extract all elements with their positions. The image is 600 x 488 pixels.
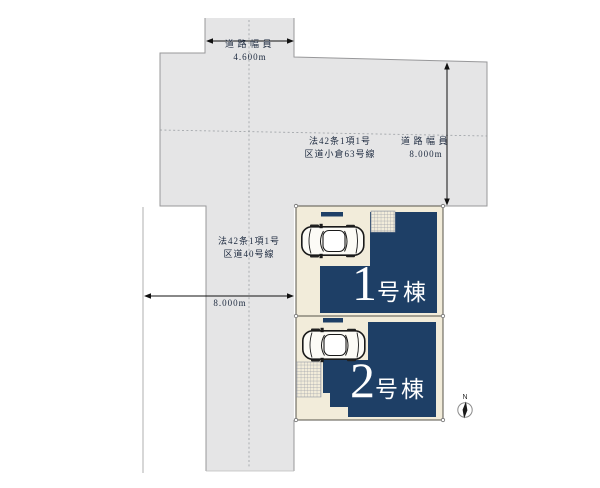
label-main-road-name: 法42条1項1号 区道小倉63号線 <box>304 135 375 161</box>
site-plan-canvas: 道路幅員 4.600m 法42条1項1号 区道小倉63号線 道路幅員 8.000… <box>0 0 600 488</box>
building-1-porch-mark <box>321 212 343 217</box>
hatched-terrace-area-2 <box>297 362 322 397</box>
building-1-number: 1 <box>352 255 377 311</box>
left-road-law: 法42条1項1号 <box>218 235 280 248</box>
building-2-suffix: 号棟 <box>375 377 427 402</box>
left-road-name: 区道40号線 <box>218 248 280 261</box>
road-area-main <box>160 18 487 206</box>
main-road-width-value: 8.000m <box>401 148 451 161</box>
label-left-road-name: 法42条1項1号 区道40号線 <box>218 235 280 261</box>
label-main-road-width: 道路幅員 8.000m <box>401 135 451 161</box>
site-plan-drawing <box>0 0 600 488</box>
building-2-porch-mark <box>323 318 343 323</box>
branch-road-width-value: 4.600m <box>225 51 275 64</box>
label-branch-road-width: 道路幅員 4.600m <box>225 38 275 64</box>
branch-road-width-title: 道路幅員 <box>225 38 275 51</box>
main-road-name: 区道小倉63号線 <box>304 148 375 161</box>
main-road-law: 法42条1項1号 <box>304 135 375 148</box>
north-compass-icon <box>458 401 472 418</box>
car-top-view-icon-1 <box>302 224 364 258</box>
main-road-width-title: 道路幅員 <box>401 135 451 148</box>
hatched-terrace-area-1 <box>371 211 395 232</box>
building-1-suffix: 号棟 <box>377 280 429 305</box>
left-road-width-value: 8.000m <box>213 298 246 309</box>
compass-north-letter: N <box>462 394 467 401</box>
building-2-number: 2 <box>350 352 375 408</box>
building-2-label: 2号棟 <box>350 355 427 405</box>
building-1-label: 1号棟 <box>352 258 429 308</box>
